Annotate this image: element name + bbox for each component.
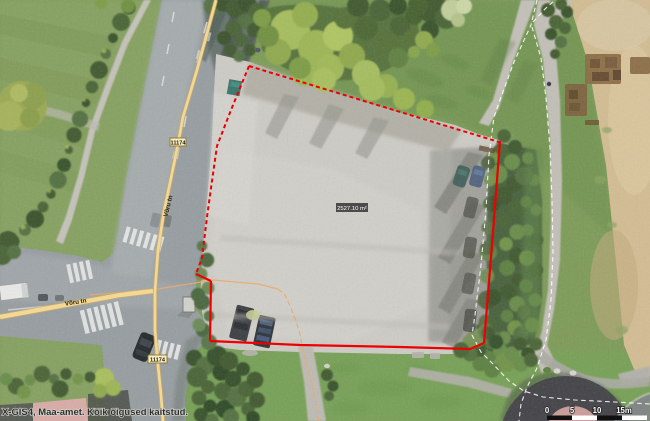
svg-text:2527.10 m²: 2527.10 m² [337,206,367,212]
svg-text:11174: 11174 [150,357,166,363]
svg-text:5: 5 [570,406,575,415]
svg-text:15m: 15m [616,406,632,415]
svg-text:10: 10 [593,406,602,415]
svg-text:X-GIS4, Maa-amet. Kõik õigused: X-GIS4, Maa-amet. Kõik õigused kaitstud. [2,407,188,418]
svg-text:0: 0 [545,406,550,415]
svg-text:11174: 11174 [171,140,187,146]
